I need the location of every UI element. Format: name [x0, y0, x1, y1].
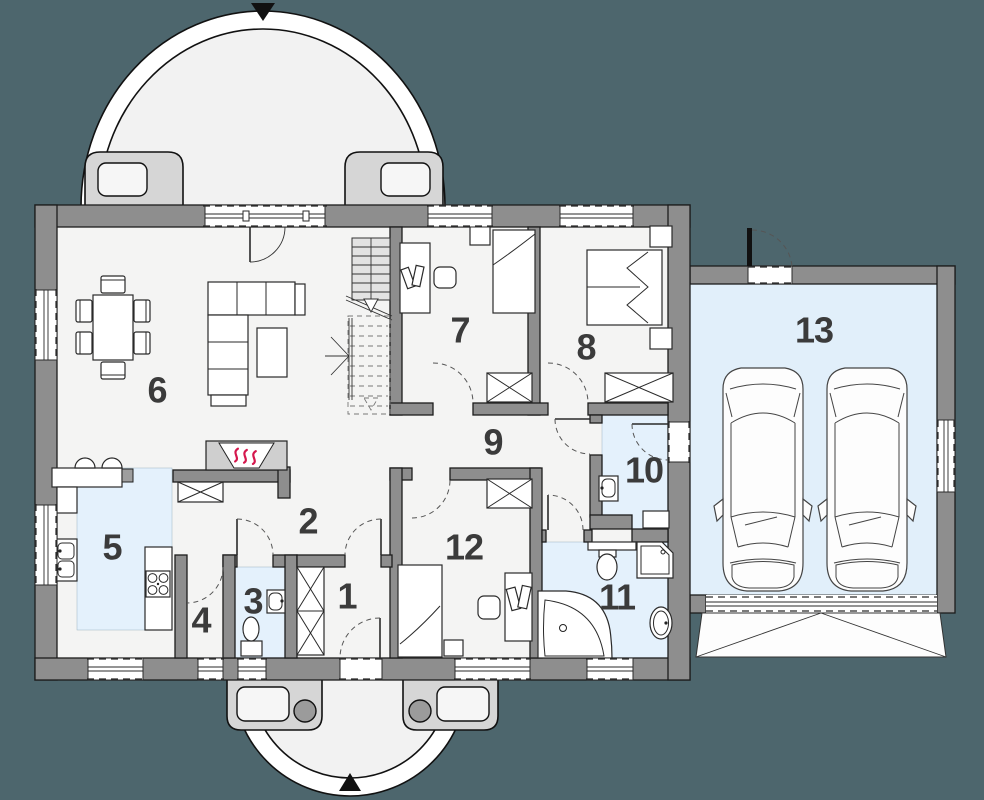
room-8-number: 8 — [576, 327, 595, 368]
bed — [398, 565, 442, 657]
door-leaf — [747, 228, 752, 266]
nightstand — [650, 328, 672, 349]
window — [87, 658, 144, 680]
wardrobe-icon — [605, 373, 673, 402]
window — [237, 658, 267, 680]
window — [586, 658, 634, 680]
kitchen-sink — [55, 539, 77, 581]
window — [559, 205, 634, 227]
terrace-pillar-right — [345, 152, 443, 207]
sink-icon — [599, 476, 618, 501]
shower-icon — [637, 542, 673, 578]
chair — [434, 267, 456, 288]
water-heater — [643, 511, 669, 528]
room-6-number: 6 — [147, 370, 166, 411]
fireplace-icon — [206, 441, 287, 470]
window — [35, 289, 57, 361]
bath-counter — [588, 542, 636, 550]
toilet-icon — [597, 550, 617, 580]
porch-left — [227, 678, 322, 730]
coffee-table — [257, 328, 287, 377]
room-1-number: 1 — [337, 576, 357, 617]
floor-plan-canvas: 1 2 3 4 5 6 7 8 9 10 11 12 13 — [0, 0, 984, 800]
hall-wardrobe-icon — [178, 482, 223, 502]
room-13-number: 13 — [795, 310, 833, 351]
double-bed — [587, 250, 662, 325]
room-11-number: 11 — [599, 577, 636, 618]
car-2 — [818, 368, 916, 591]
garage-wall-stub — [690, 595, 706, 613]
kitchen-cabinet — [57, 487, 77, 513]
wardrobe-icon — [487, 373, 532, 402]
driveway-apron — [696, 613, 946, 657]
single-bed — [493, 230, 535, 313]
garage-wall-top — [690, 266, 955, 284]
bedside-table — [444, 640, 463, 656]
garage-window — [937, 420, 955, 492]
porch-column-icon — [409, 700, 431, 722]
oval-sink-icon — [650, 607, 672, 639]
car-1 — [714, 368, 812, 591]
garage-door — [706, 595, 937, 613]
room-2-number: 2 — [298, 501, 317, 542]
window — [35, 504, 57, 586]
nightstand — [650, 226, 672, 247]
porch-column-icon — [294, 700, 316, 722]
porch-right — [403, 678, 498, 730]
window — [427, 205, 493, 227]
room-9-number: 9 — [483, 422, 502, 463]
room-12-number: 12 — [445, 527, 483, 568]
stove-icon — [146, 571, 170, 597]
room-3-number: 3 — [243, 581, 262, 622]
bar-end-post — [122, 469, 133, 482]
window — [197, 658, 224, 680]
sink-icon — [267, 590, 285, 613]
garage — [690, 228, 955, 657]
window — [454, 658, 531, 680]
terrace-pillar-left — [85, 152, 183, 207]
breakfast-bar — [52, 468, 122, 487]
wardrobe-icon — [487, 479, 532, 508]
room-10-number: 10 — [625, 450, 663, 491]
room-7-number: 7 — [450, 310, 469, 351]
room-5-number: 5 — [102, 527, 122, 568]
chair — [478, 596, 500, 619]
room-4-number: 4 — [191, 600, 211, 641]
entry-wardrobe-icon — [297, 567, 324, 655]
dining-table — [93, 295, 133, 360]
